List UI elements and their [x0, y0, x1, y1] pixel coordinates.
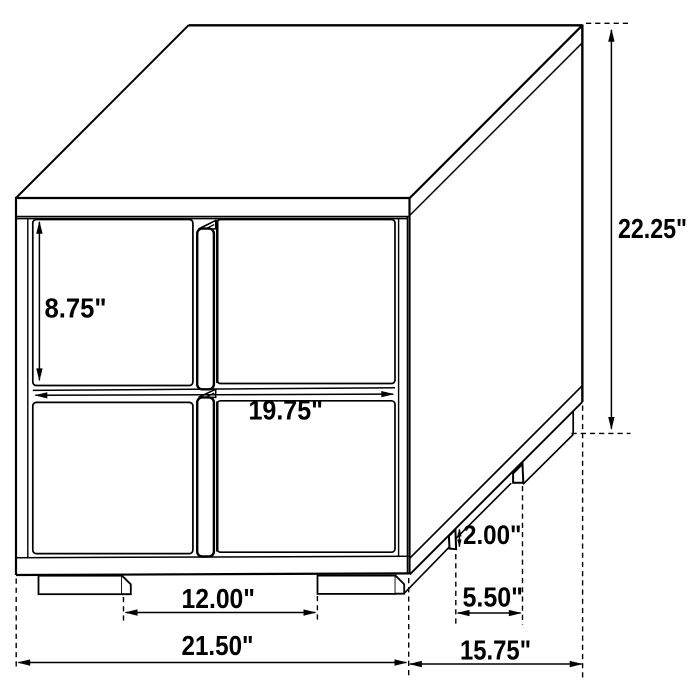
- svg-text:15.75": 15.75": [460, 634, 531, 665]
- svg-text:22.25": 22.25": [618, 213, 687, 244]
- svg-text:21.50": 21.50": [182, 630, 254, 661]
- svg-text:2.00": 2.00": [463, 520, 522, 550]
- svg-text:12.00": 12.00": [182, 583, 256, 614]
- svg-text:19.75": 19.75": [249, 395, 324, 426]
- svg-text:5.50": 5.50": [463, 581, 524, 612]
- svg-text:8.75": 8.75": [45, 293, 107, 324]
